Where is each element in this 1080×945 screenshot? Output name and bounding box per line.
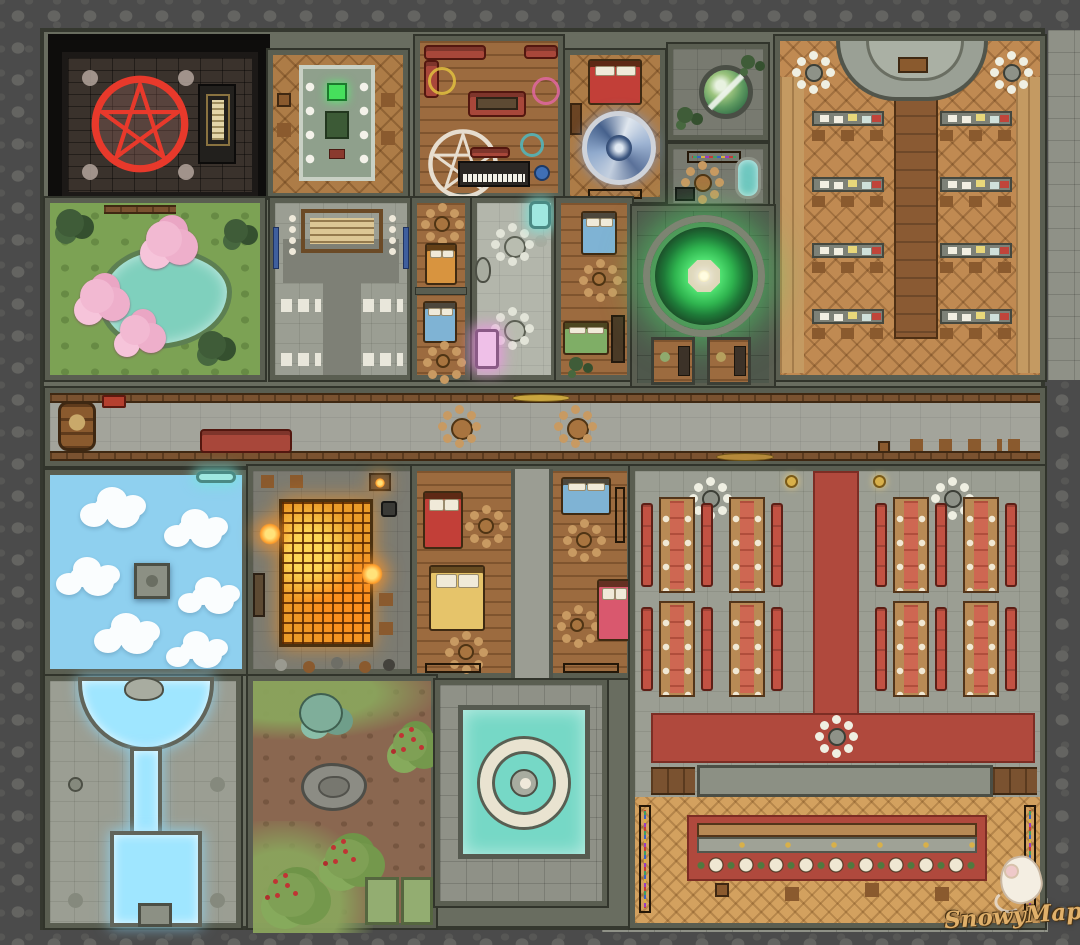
cloud: [70, 567, 94, 587]
world-globe-icon: [699, 65, 753, 119]
red-pentagram-icon: [88, 72, 192, 176]
red-book: [329, 149, 345, 159]
cloud: [178, 519, 202, 539]
desk: [678, 346, 690, 376]
candle-stands: [289, 215, 296, 222]
room-fountain-court: [435, 680, 607, 906]
round-table: [581, 261, 617, 297]
floor-path-stem: [323, 283, 361, 375]
stage-step: [651, 767, 695, 795]
corridor-trim-bottom: [50, 451, 1040, 461]
central-hallway: [511, 469, 553, 679]
room-dining: [268, 50, 408, 198]
desk: [940, 177, 1012, 192]
round-table: [565, 521, 603, 559]
crates: [277, 93, 291, 107]
tool-board: [253, 573, 265, 617]
desk: [940, 309, 1012, 324]
study-alcove: [651, 337, 695, 385]
seated-figure: [534, 165, 550, 181]
bench-row: [940, 262, 1012, 273]
glowing-green-box: [327, 83, 347, 101]
blue-banner: [403, 227, 409, 269]
sofa-top: [424, 45, 486, 60]
chandelier: [817, 717, 857, 757]
pink-magic-circle: [532, 77, 560, 105]
banquet-table: [893, 497, 929, 593]
wall-lamp: [873, 475, 886, 488]
berry-bush: [325, 839, 369, 879]
platform-rune: [146, 575, 158, 587]
cloud: [94, 497, 120, 519]
desk: [812, 309, 884, 324]
room-bath-lab: [668, 144, 768, 208]
gold-platter: [716, 453, 774, 461]
walkway-right: [1048, 30, 1080, 380]
desk: [940, 111, 1012, 126]
bookshelf: [563, 663, 619, 673]
blue-bed: [581, 211, 617, 255]
bench: [910, 439, 1002, 451]
bench-row: [812, 262, 884, 273]
buffet-stools: [697, 855, 977, 875]
bush: [198, 331, 226, 359]
desk: [812, 111, 884, 126]
side-walk-left: [780, 77, 804, 373]
lectern-pedestal: [198, 84, 236, 164]
cloud: [192, 587, 214, 605]
red-bench: [1005, 503, 1017, 587]
carpet-aisle: [813, 471, 859, 723]
ember-grid-floor: [279, 499, 373, 647]
chandelier: [794, 53, 834, 93]
barrel: [58, 401, 96, 451]
glowing-entry-step: [196, 471, 236, 483]
fountain-statue: [510, 769, 538, 797]
room-ritual-chamber: [62, 52, 258, 198]
desk: [812, 177, 884, 192]
water-channel: [130, 747, 162, 835]
red-bench: [641, 503, 653, 587]
room-lecture-hall: [775, 36, 1045, 380]
room-water-shrine: [45, 676, 241, 928]
tool-shelf: [379, 589, 393, 635]
teal-shrub: [299, 693, 343, 733]
fire: [361, 563, 383, 585]
garden-plot: [401, 877, 433, 925]
watermark: SnowyMaps: [944, 868, 1076, 938]
banquet-table: [659, 601, 695, 697]
room-blossom-garden: [45, 198, 265, 380]
banquet-table: [659, 497, 695, 593]
side-shelf: [639, 805, 651, 913]
red-bench: [875, 503, 887, 587]
room-dorm-cells: [556, 198, 632, 380]
yellow-bed: [429, 565, 485, 631]
cloud: [108, 623, 134, 645]
room-main-corridor: [45, 388, 1045, 466]
round-table: [425, 343, 461, 379]
red-bench: [771, 607, 783, 691]
stage-step: [993, 767, 1037, 795]
pink-glow-altar: [475, 329, 499, 369]
plant: [677, 107, 693, 123]
wall-lamp: [785, 475, 798, 488]
figure: [716, 352, 726, 362]
red-bench: [701, 607, 713, 691]
corridor-sofa: [200, 429, 292, 453]
orange-bed: [425, 243, 457, 285]
desk: [611, 315, 625, 363]
stool-cluster: [493, 225, 537, 269]
figure: [660, 352, 670, 362]
bookshelf: [425, 663, 481, 673]
cherry-blossom-tree: [80, 279, 114, 313]
battle-map: SnowyMaps: [0, 0, 1080, 945]
berry-bush: [267, 873, 315, 917]
banquet-table: [729, 601, 765, 697]
study-alcove: [707, 337, 751, 385]
clutter-plant: [569, 357, 583, 371]
bench-row: [812, 196, 884, 207]
banquet-table: [729, 497, 765, 593]
potion-shelf: [687, 151, 741, 163]
room-forge: [248, 466, 416, 674]
forge-bench: [261, 475, 313, 488]
pots: [878, 441, 890, 453]
boulder: [301, 763, 367, 811]
bench-row: [812, 130, 884, 141]
round-table: [440, 407, 484, 451]
desk: [570, 103, 582, 135]
center-aisle: [894, 95, 938, 339]
crates: [715, 883, 729, 897]
red-bench: [935, 503, 947, 587]
bench-row: [940, 328, 1012, 339]
white-bench-row: [363, 299, 403, 312]
round-table: [467, 507, 505, 545]
bathtub: [735, 157, 761, 199]
inner-wall: [415, 287, 467, 295]
room-globe: [668, 44, 768, 140]
sofa-right: [524, 45, 558, 59]
white-bench-row: [363, 353, 403, 366]
bench-row: [940, 130, 1012, 141]
red-bench: [701, 503, 713, 587]
cherry-blossom-tree: [146, 221, 182, 257]
buffet-counter-top: [697, 823, 977, 837]
red-bench: [1005, 607, 1017, 691]
desk: [940, 243, 1012, 258]
gold-platter: [512, 394, 570, 402]
room-dormitory-block: [412, 466, 632, 678]
banquet-table: [963, 601, 999, 697]
notice-board: [301, 209, 383, 253]
buffet-counter: [697, 837, 977, 853]
anvil: [381, 501, 397, 517]
blue-bed: [423, 301, 457, 343]
room-notice-hall: [270, 198, 412, 380]
bookshelf: [615, 487, 625, 543]
bench-row: [940, 196, 1012, 207]
berry-bush: [393, 727, 427, 761]
round-table: [559, 607, 595, 643]
room-sky-illusion: [45, 470, 247, 674]
round-table: [423, 205, 461, 243]
basin-statue: [124, 677, 164, 701]
red-bench: [641, 607, 653, 691]
watermark-label: SnowyMaps: [943, 897, 1080, 934]
desk: [734, 346, 746, 376]
teal-magic-circle: [520, 133, 544, 157]
desk: [812, 243, 884, 258]
white-bench-row: [281, 299, 321, 312]
green-portal-circle: [643, 215, 765, 337]
room-portal-bedroom: [565, 50, 665, 202]
floating-platform: [134, 563, 170, 599]
blue-banner: [273, 227, 279, 269]
floor-clutter: [275, 659, 287, 671]
room-teleport-chamber: [632, 206, 774, 388]
teal-glow-pod: [529, 201, 551, 229]
room-lounge: [415, 36, 563, 198]
room-banquet-hall: [630, 466, 1045, 928]
white-bench-row: [281, 353, 321, 366]
lectern: [898, 57, 928, 73]
cherry-blossom-tree: [120, 315, 150, 345]
plant: [741, 55, 755, 69]
red-bench: [935, 607, 947, 691]
yellow-magic-circle: [428, 67, 456, 95]
room-small-dormitory: [412, 198, 470, 380]
red-bench: [771, 503, 783, 587]
statue-head: [520, 778, 531, 789]
scroll: [206, 94, 230, 146]
pink-bed: [597, 579, 631, 641]
bush: [56, 209, 84, 237]
statue: [475, 257, 491, 283]
blue-vortex-portal: [582, 111, 656, 185]
hearth: [369, 473, 391, 491]
red-bed: [423, 491, 463, 549]
basin: [675, 187, 695, 201]
piano-seats: [470, 147, 510, 158]
green-bed: [563, 321, 609, 355]
banquet-table: [893, 601, 929, 697]
floor-medallions: [68, 777, 83, 792]
garden-fence: [104, 205, 176, 214]
coffee-table: [476, 97, 518, 110]
dining-table: [299, 65, 375, 181]
red-cloth: [102, 395, 126, 408]
bench-row: [812, 328, 884, 339]
red-bench: [875, 607, 887, 691]
stool-cluster: [493, 309, 537, 353]
green-mat: [325, 111, 349, 139]
round-table: [556, 407, 600, 451]
room-assembly-hall: [472, 198, 556, 380]
bush: [224, 219, 248, 243]
banquet-table: [963, 497, 999, 593]
garden-plot: [365, 877, 399, 925]
hearth-fire: [375, 478, 385, 488]
chandelier: [992, 53, 1032, 93]
blue-bed: [561, 477, 611, 515]
cloud: [180, 641, 202, 659]
piano: [458, 161, 530, 187]
pool-altar: [138, 903, 172, 927]
red-bed: [588, 59, 642, 105]
room-courtyard-garden: [248, 676, 436, 928]
side-walk-right: [1016, 77, 1040, 373]
stage: [697, 765, 993, 797]
fire: [259, 523, 281, 545]
